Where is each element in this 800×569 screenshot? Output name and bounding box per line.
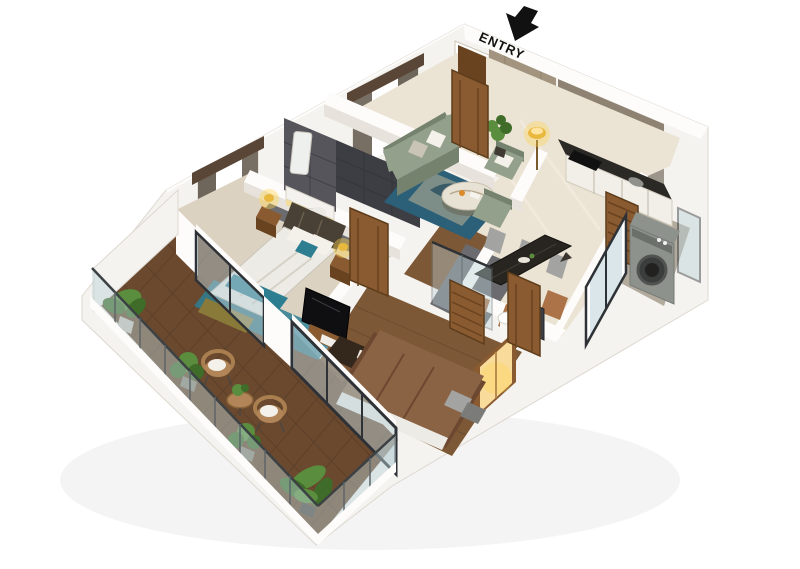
bathroom1-mirror — [290, 131, 312, 175]
floorplan-page: ENTRY — [0, 0, 800, 569]
utility-glass-panel — [678, 208, 700, 282]
bedroom2-door — [508, 272, 540, 356]
master-door — [350, 208, 388, 296]
entry-down-arrow-icon — [506, 6, 539, 41]
floorplan-3d-render: ENTRY — [0, 0, 800, 569]
entry-door-open-leaf — [452, 70, 488, 158]
